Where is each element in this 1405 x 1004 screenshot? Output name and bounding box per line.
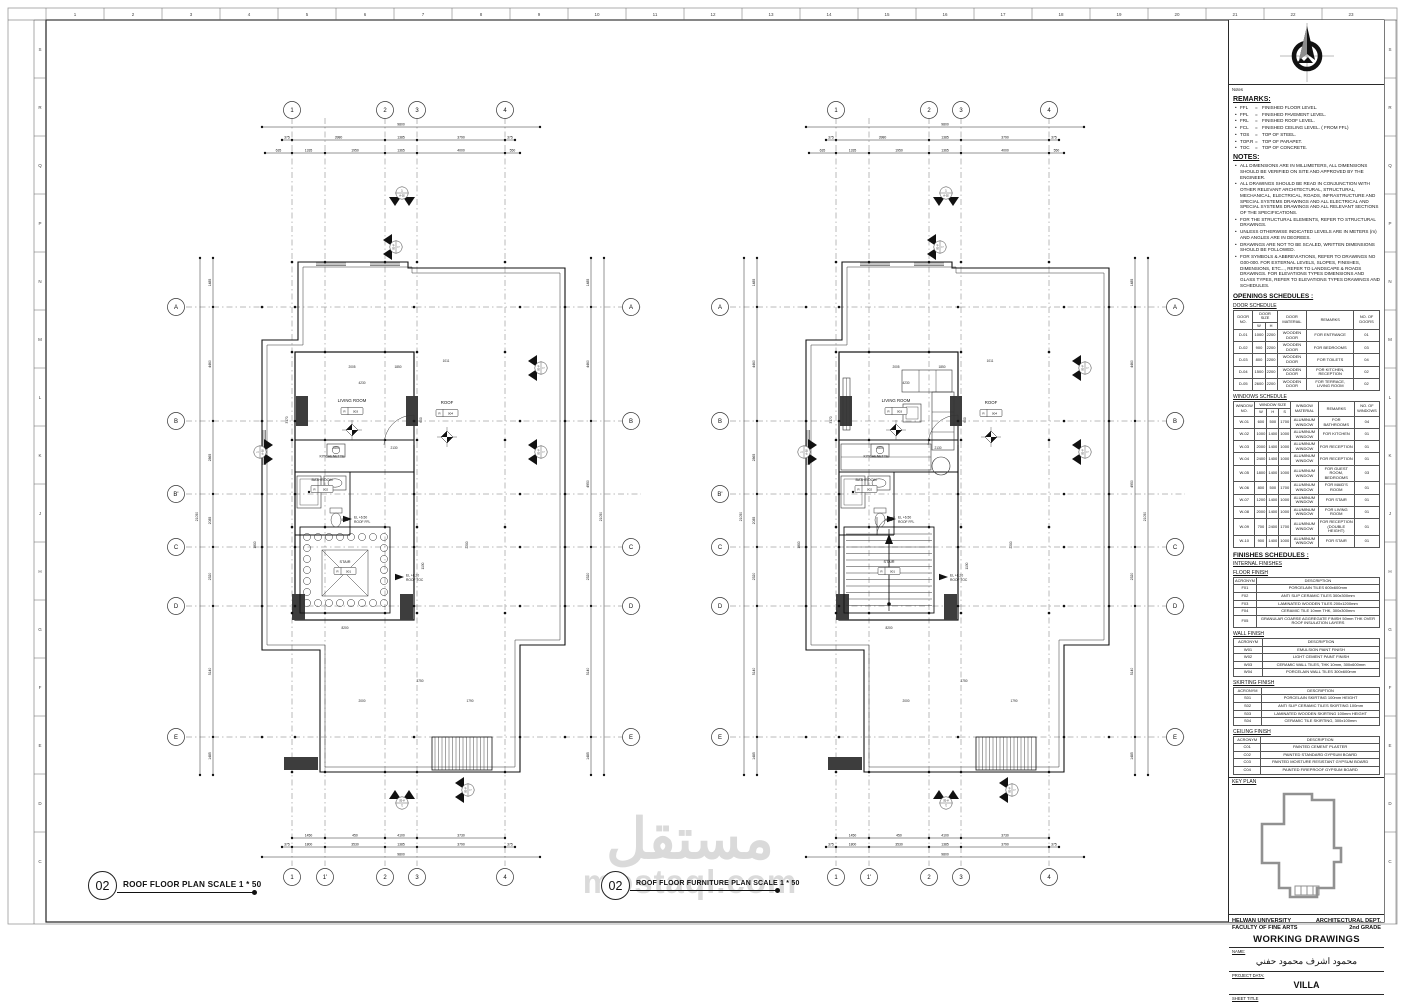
drawing-geometry [324, 439, 327, 442]
drawing-geometry [756, 420, 758, 422]
annotation-text: 3790 [457, 135, 465, 139]
drawing-geometry [1048, 139, 1050, 141]
drawing-geometry [303, 566, 310, 573]
table-row: F02ANTI SLIP CERAMIC TILES 300x300mm [1234, 593, 1380, 601]
table-cell: FOR TOILETS [1307, 354, 1354, 366]
table-row: W-08200014001000ALUMINUM WINDOWFOR LIVIN… [1234, 506, 1380, 518]
drawing-geometry [603, 257, 605, 259]
annotation-text: 2005 [348, 365, 355, 369]
table-cell: ALUMINUM WINDOW [1291, 506, 1319, 518]
table-row: C03PAINTED MOISTURE RESISTANT GYPSUM BOA… [1234, 759, 1380, 767]
annotation-text: 8200 [341, 626, 348, 630]
annotation-text: 1485 [1130, 752, 1134, 760]
annotation-text: 21050 [599, 512, 603, 522]
drawing-geometry [294, 736, 297, 739]
table-cell: 2200 [1265, 366, 1277, 378]
table-cell: 1700 [1279, 482, 1291, 494]
annotation-text: 21050 [195, 512, 199, 522]
floor-finish-title: FLOOR FINISH [1233, 570, 1380, 576]
drawing-geometry [1108, 546, 1111, 549]
drawing-geometry [384, 837, 386, 839]
section-marker: 1A-02 [1072, 439, 1091, 465]
table-cell: ANTI SLIP CERAMIC TILES SKIRTING 100mm [1262, 702, 1380, 710]
table-cell: 1400 [1267, 429, 1279, 441]
annotation-text: 375 [1051, 842, 1057, 846]
sheet-title-label: SHEET TITLE [1232, 996, 1381, 1001]
annotation-text: 4950 [1130, 480, 1134, 488]
table-cell: FOR BEDROOMS [1307, 342, 1354, 354]
drawing-geometry [292, 594, 305, 620]
drawing-geometry [835, 139, 837, 141]
drawing-geometry [1058, 139, 1060, 141]
annotation-text: A-02 [1080, 365, 1084, 371]
table-cell: D-04 [1234, 366, 1253, 378]
table-cell: W-03 [1234, 441, 1255, 453]
drawing-geometry [261, 856, 263, 858]
annotation-text: A [718, 305, 722, 311]
table-cell: 03 [1354, 465, 1379, 482]
drawing-geometry [504, 139, 506, 141]
drawing-geometry [564, 546, 567, 549]
annotation-text: 3790 [1001, 842, 1009, 846]
table-cell: 01 [1354, 330, 1380, 342]
annotation-text: 2005 [892, 365, 899, 369]
table-cell: 1000 [1253, 330, 1265, 342]
annotation-text: A-02 [399, 798, 405, 802]
drawing-geometry [413, 546, 416, 549]
drawing-geometry [928, 261, 931, 264]
plan-number-bubble: 02 [601, 871, 630, 900]
plan-title-label: ROOF FLOOR FURNITURE PLAN SCALE 1 * 50 [630, 878, 778, 891]
table-cell: W02 [1234, 654, 1263, 662]
drawing-geometry [590, 546, 592, 548]
drawing-geometry [413, 605, 416, 608]
drawing-geometry [960, 771, 963, 774]
drawing-geometry [868, 439, 871, 442]
table-cell: S02 [1234, 702, 1262, 710]
university-name: HELWAN UNIVERSITY FACULTY OF FINE ARTS [1232, 918, 1297, 933]
drawing-geometry [590, 306, 592, 308]
drawing-geometry [294, 420, 297, 423]
annotation-text: 1011 [443, 359, 450, 363]
annotation-text: C [718, 545, 723, 551]
note-item: •FOR THE STRUCTURAL ELEMENTS, REFER TO S… [1235, 217, 1380, 228]
drawing-geometry [960, 837, 962, 839]
annotation-text: 2600 [876, 446, 883, 450]
drawing-geometry [261, 126, 263, 128]
drawing-geometry [331, 513, 341, 527]
table-cell: C04 [1234, 767, 1261, 775]
drawing-geometry [957, 546, 960, 549]
table-cell: CERAMIC WALL TILES, THK 10mm, 300x600mm [1263, 661, 1380, 669]
annotation-text: 450 [896, 833, 902, 837]
table-cell: 2200 [1265, 330, 1277, 342]
drawing-geometry [212, 493, 214, 495]
drawing-geometry [957, 605, 960, 608]
table-row: F04CERAMIC TILE 10mm THK, 300x300mm [1234, 608, 1380, 616]
drawing-geometry [519, 152, 521, 154]
table-cell: FOR MAID'S ROOM [1318, 482, 1354, 494]
annotation-text: M [1388, 337, 1392, 342]
drawing-geometry [756, 546, 758, 548]
table-cell: 1800 [1255, 465, 1267, 482]
annotation-text: 4950 [586, 480, 590, 488]
drawing-geometry [46, 20, 1384, 922]
drawing-geometry [324, 351, 327, 354]
annotation-text: 600 [419, 417, 423, 423]
table-row: W-068005001700ALUMINUM WINDOWFOR MAID'S … [1234, 482, 1380, 494]
table-cell: PAINTED STANDARD GYPSUM BOARD [1261, 751, 1380, 759]
drawing-geometry [1048, 612, 1051, 615]
drawing-geometry [395, 574, 404, 580]
drawing-geometry [261, 306, 264, 309]
annotation-text: B [1173, 419, 1177, 425]
drawing-geometry [603, 774, 605, 776]
drawing-geometry [756, 257, 758, 259]
wall-finish-table: ACRONYMDESCRIPTIONW01EMULSION PAINT FINI… [1233, 638, 1380, 677]
table-row: D-0110002200WOODEN DOORFOR ENTRANCE01 [1234, 330, 1380, 342]
annotation-text: 1485 [208, 752, 212, 760]
table-header-cell: DOOR MATERIAL [1277, 310, 1307, 329]
table-cell: FOR KITCHEN, RECEPTION [1307, 366, 1354, 378]
drawing-geometry [291, 261, 294, 264]
drawing-geometry [805, 493, 808, 496]
remark-item: •FCL=FINISHED CEILING LEVEL. ( FROM FFL) [1235, 125, 1380, 131]
annotation-text: E [629, 735, 633, 741]
annotation-text: S [38, 47, 41, 52]
drawing-geometry [504, 439, 507, 442]
drawing-geometry [960, 351, 963, 354]
section-marker: 1A-02 [999, 777, 1018, 803]
drawing-geometry [519, 493, 522, 496]
annotation-text: N [38, 279, 41, 284]
table-row: C04PAINTED FIREPROOF GYPSUM BOARD [1234, 767, 1380, 775]
drawing-geometry [504, 771, 507, 774]
annotation-text: 3 [190, 12, 193, 17]
drawing-geometry [805, 126, 807, 128]
drawing-geometry [756, 493, 758, 495]
table-cell: ALUMINUM WINDOW [1291, 465, 1319, 482]
annotation-text: A [1173, 305, 1177, 311]
drawing-geometry [1048, 837, 1050, 839]
table-cell: 2200 [1265, 342, 1277, 354]
table-cell: 01 [1354, 482, 1379, 494]
project-data-row: PROJECT DATA: VILLA [1229, 971, 1384, 994]
annotation-text: Q [38, 163, 42, 168]
table-cell: 2200 [1265, 354, 1277, 366]
drawing-geometry [825, 139, 827, 141]
annotation-text: 5140 [208, 668, 212, 676]
annotation-text: 5800 [885, 518, 892, 522]
table-cell: LAMINATED WOODEN SKIRTING 100mm HEIGHT [1262, 710, 1380, 718]
annotation-text: H [1388, 569, 1391, 574]
table-cell: FOR BATHROOMS [1318, 416, 1354, 428]
drawing-geometry [514, 846, 516, 848]
table-cell: F05 [1234, 615, 1257, 627]
annotation-text: J [1389, 511, 1391, 516]
sheet-title-row: SHEET TITLE [1229, 994, 1384, 1004]
annotation-text: B [174, 419, 178, 425]
annotation-text: A [629, 305, 633, 311]
annotation-text: 3170 [285, 416, 289, 423]
table-cell: ALUMINUM WINDOW [1291, 441, 1319, 453]
table-cell: C01 [1234, 744, 1261, 752]
drawing-geometry [308, 491, 310, 493]
drawing-geometry [1048, 439, 1051, 442]
drawing-geometry [590, 736, 592, 738]
drawing-geometry [756, 736, 758, 738]
drawing-geometry [960, 846, 962, 848]
annotation-text: 4 [248, 12, 251, 17]
table-header-cell: S [1279, 409, 1291, 416]
drawing-geometry [825, 846, 827, 848]
table-cell: 1200 [1255, 494, 1267, 506]
section-marker: 1A-02 [528, 355, 547, 381]
drawing-geometry [346, 424, 352, 430]
annotation-text: 16 [942, 12, 948, 17]
drawing-geometry [296, 396, 308, 426]
table-cell: D-03 [1234, 354, 1253, 366]
annotation-text: BATHROOM [311, 478, 332, 482]
annotation-text: ROOF TOC [406, 578, 424, 582]
annotation-text: E [1388, 743, 1391, 748]
drawing-geometry [1083, 126, 1085, 128]
annotation-text: C [629, 545, 634, 551]
table-cell: 1400 [1267, 453, 1279, 465]
annotation-text: LIVING ROOM [882, 398, 911, 403]
drawing-geometry [291, 846, 293, 848]
table-cell: 04 [1354, 354, 1380, 366]
annotation-text: 21050 [739, 512, 743, 522]
drawing-geometry [314, 599, 321, 606]
annotation-text: A-02 [943, 194, 949, 198]
drawing-geometry [1048, 846, 1050, 848]
drawing-geometry [960, 612, 963, 615]
drawing-geometry [384, 771, 387, 774]
annotation-text: 18 [1058, 12, 1064, 17]
annotation-text: 550 [510, 148, 516, 152]
table-cell: W-08 [1234, 506, 1255, 518]
annotation-text: 4460 [586, 360, 590, 368]
table-row: D-0415002200WOODEN DOORFOR KITCHEN, RECE… [1234, 366, 1380, 378]
annotation-text: M [38, 337, 42, 342]
section-marker: 1A-02 [1072, 355, 1091, 381]
table-cell: CERAMIC TILE 10mm THK, 300x300mm [1256, 608, 1379, 616]
openings-schedules-title: OPENINGS SCHEDULES : [1233, 293, 1380, 300]
annotation-text: L [1389, 395, 1392, 400]
table-row: S03LAMINATED WOODEN SKIRTING 100mm HEIGH… [1234, 710, 1380, 718]
drawing-geometry [1134, 546, 1136, 548]
drawing-geometry [1147, 257, 1149, 259]
annotation-text: 11 [653, 12, 658, 17]
drawing-geometry [413, 493, 416, 496]
annotation-text: B [718, 419, 722, 425]
table-header-cell: W [1253, 322, 1265, 329]
drawing-geometry [1048, 526, 1051, 529]
drawing-geometry [384, 152, 386, 154]
section-marker: 1A-02 [455, 777, 474, 803]
remarks-list: •FFL=FINISHED FLOOR LEVEL.•FPL=FINISHED … [1233, 105, 1380, 151]
annotation-text: 20 [1174, 12, 1180, 17]
table-cell: 1400 [1267, 506, 1279, 518]
annotation-text: 1790 [466, 699, 473, 703]
annotation-text: 4100 [397, 833, 405, 837]
floor-finish-table: ACRONYMDESCRIPTIONF01PORCELAIN TILES 600… [1233, 577, 1380, 628]
name-row: NAME: محمود اشرف محمود حفني [1229, 947, 1384, 971]
remarks-title: REMARKS: [1233, 96, 1380, 103]
notes-title: NOTES: [1233, 154, 1380, 161]
table-cell: FOR STAIR [1318, 535, 1354, 547]
remark-item: •TOP.R=TOP OF PARAPET. [1235, 139, 1380, 145]
table-cell: WOODEN DOOR [1277, 342, 1307, 354]
drawing-geometry [1134, 605, 1136, 607]
drawing-geometry [291, 612, 294, 615]
table-cell: 1000 [1279, 465, 1291, 482]
table-cell: 01 [1354, 535, 1379, 547]
note-item: •FOR SYMBOLS & ABBREVIATIONS, REFER TO D… [1235, 254, 1380, 288]
annotation-text: N [1388, 279, 1391, 284]
drawing-geometry [212, 546, 214, 548]
drawing-geometry [868, 837, 870, 839]
drawing-geometry [384, 351, 387, 354]
annotation-text: 3980 [879, 135, 887, 139]
note-item: •DRAWINGS ARE NOT TO BE SCALED, WRITTEN … [1235, 242, 1380, 253]
section-marker: 1A-02 [933, 187, 959, 206]
table-row: W01EMULSION PAINT FINISH [1234, 646, 1380, 654]
section-marker: 1A-02 [389, 187, 415, 206]
plan-number: 02 [96, 879, 110, 893]
drawing-geometry [347, 533, 354, 540]
drawing-geometry [303, 577, 310, 584]
remark-item: •FPL=FINISHED PAVEMENT LEVEL. [1235, 112, 1380, 118]
drawing-geometry [805, 736, 808, 739]
annotation-text: 3170 [829, 416, 833, 423]
annotation-text: 3790 [457, 842, 465, 846]
title-end-dot [775, 888, 780, 893]
drawing-geometry [291, 152, 293, 154]
annotation-text: KITCHENETTE [320, 455, 346, 459]
ceiling-finish-title: CEILING FINISH [1233, 729, 1380, 735]
drawing-geometry [380, 577, 387, 584]
table-cell: FOR TERRACE, LIVING ROOM [1307, 378, 1354, 390]
drawing-geometry [416, 261, 419, 264]
drawing-geometry [928, 351, 931, 354]
table-cell: 1000 [1279, 429, 1291, 441]
drawing-geometry [836, 594, 849, 620]
annotation-text: 13 [768, 12, 774, 17]
table-row: W03CERAMIC WALL TILES, THK 10mm, 300x600… [1234, 661, 1380, 669]
annotation-text: 2320 [1130, 573, 1134, 581]
annotation-text: K [1388, 453, 1391, 458]
title-block: Notes REMARKS: •FFL=FINISHED FLOOR LEVEL… [1228, 20, 1384, 922]
drawing-geometry [352, 430, 358, 436]
drawing-geometry [212, 774, 214, 776]
annotation-text: 1850 [394, 365, 401, 369]
drawing-geometry [384, 846, 386, 848]
annotation-text: B' [173, 492, 178, 498]
plans-canvas: 1234567891011121314151617181920212223SSR… [0, 0, 1405, 932]
annotation-text: 1365 [397, 148, 405, 152]
annotation-text: A-02 [935, 244, 939, 250]
drawing-geometry [336, 533, 343, 540]
drawing-geometry [324, 771, 327, 774]
drawing-geometry [400, 594, 413, 620]
table-row: C02PAINTED STANDARD GYPSUM BOARD [1234, 751, 1380, 759]
drawing-geometry [960, 152, 962, 154]
drawing-geometry [743, 257, 745, 259]
table-header-cell: REMARKS [1318, 401, 1354, 416]
table-cell: 900 [1255, 535, 1267, 547]
plan-title-label: ROOF FLOOR PLAN SCALE 1 * 50 [117, 878, 255, 893]
internal-finishes-label: INTERNAL FINISHES [1233, 561, 1380, 567]
table-cell: 2400 [1267, 519, 1279, 536]
drawing-geometry [504, 351, 507, 354]
drawing-geometry [835, 612, 838, 615]
annotation-text: 2130 [934, 446, 941, 450]
annotation-text: STAIR [884, 560, 895, 564]
annotation-text: C [38, 859, 42, 864]
annotation-text: A-02 [1007, 787, 1011, 793]
drawing-geometry [805, 306, 808, 309]
table-cell: FOR RECEPTION [1318, 453, 1354, 465]
drawing-geometry [380, 533, 387, 540]
drawing-geometry [416, 771, 419, 774]
drawing-geometry [805, 546, 808, 549]
drawing-geometry [944, 594, 957, 620]
annotation-text: R [1388, 105, 1392, 110]
annotation-text: 375 [507, 135, 513, 139]
annotation-text: K [38, 453, 41, 458]
annotation-text: 12 [710, 12, 716, 17]
annotation-text: 8200 [885, 626, 892, 630]
annotation-text: A-02 [261, 449, 265, 455]
title-end-dot [252, 890, 257, 895]
annotation-text: 22 [1290, 12, 1296, 17]
drawing-geometry [441, 431, 447, 437]
annotation-text: 550 [1054, 148, 1060, 152]
annotation-text: 9800 [941, 852, 949, 856]
issues-label: Notes [1229, 85, 1384, 92]
drawing-geometry [1063, 546, 1066, 549]
table-cell: 1400 [1267, 465, 1279, 482]
annotation-text: P [38, 221, 41, 226]
section-marker: 1A-02 [528, 439, 547, 465]
annotation-text: 1950 [351, 148, 359, 152]
drawing-geometry [743, 774, 745, 776]
annotation-text: 3750 [960, 679, 967, 683]
annotation-text: 4230 [358, 381, 365, 385]
drawing-geometry [303, 555, 310, 562]
annotation-text: 6 [364, 12, 367, 17]
note-item: •UNLESS OTHERWISE INDICATED LEVELS ARE I… [1235, 229, 1380, 240]
drawing-geometry [416, 846, 418, 848]
annotation-text: 600 [963, 417, 967, 423]
annotation-text: 375 [828, 842, 834, 846]
drawing-geometry [1134, 774, 1136, 776]
table-cell: F04 [1234, 608, 1257, 616]
annotation-text: 4100 [941, 833, 949, 837]
section-marker: 1A-02 [933, 790, 959, 809]
table-cell: 03 [1354, 342, 1380, 354]
department: ARCHITECTURAL DEPT. 2nd GRADE [1316, 918, 1381, 933]
table-cell: GRANULAR COARSE AGGREGATE FINISH 50mm TH… [1256, 615, 1379, 627]
annotation-text: 4230 [902, 381, 909, 385]
drawing-geometry [1108, 493, 1111, 496]
working-drawings-title: WORKING DRAWINGS [1232, 934, 1381, 945]
drawing-geometry [413, 736, 416, 739]
table-cell: W-10 [1234, 535, 1255, 547]
drawing-geometry [1134, 736, 1136, 738]
